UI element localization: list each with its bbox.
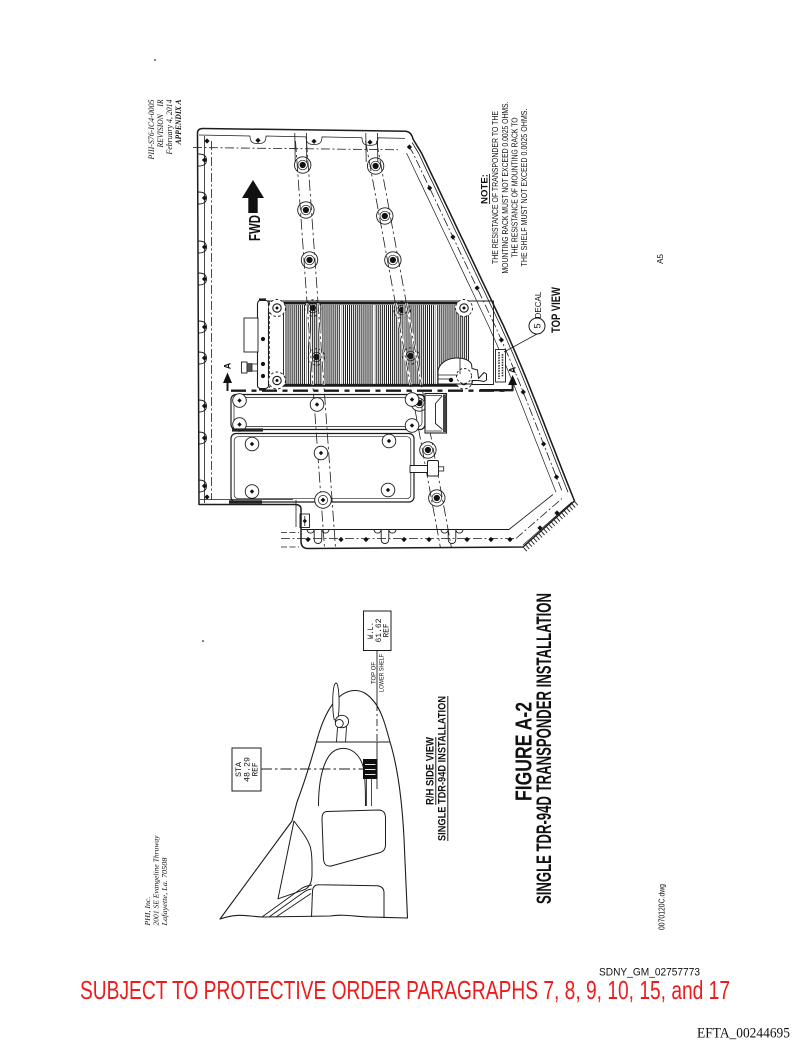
svg-text:Lafayette, La. 70508: Lafayette, La. 70508 [160,857,169,926]
svg-text:PIII-S76-IC4-0005: PIII-S76-IC4-0005 [147,100,156,161]
svg-text:SINGLE TDR-94D TRANSPONDER INS: SINGLE TDR-94D TRANSPONDER INSTALLATION [533,593,556,904]
svg-text:EFTA_00244695: EFTA_00244695 [697,1026,790,1042]
svg-text:TOP OF: TOP OF [371,662,378,684]
svg-text:0070120C.dwg: 0070120C.dwg [658,884,667,930]
svg-text:February 4, 2014: February 4, 2014 [165,100,174,156]
svg-text:5: 5 [533,323,543,328]
svg-text:A: A [508,366,518,373]
svg-text:R/H SIDE VIEW: R/H SIDE VIEW [425,736,437,805]
svg-text:REF: REF [252,762,261,776]
svg-text:THE RESISTANCE OF MOUNTING RAC: THE RESISTANCE OF MOUNTING RACK TO [511,118,520,258]
svg-text:LOWER SHELF: LOWER SHELF [379,654,386,692]
svg-text:TOP VIEW: TOP VIEW [549,286,563,333]
svg-text:A5: A5 [656,254,665,264]
svg-text:APPENDIX A: APPENDIX A [174,99,183,145]
svg-text:MOUNTING RACK MUST NOT EXCEED: MOUNTING RACK MUST NOT EXCEED 0.0025 OHM… [501,102,510,274]
svg-text:NOTE:: NOTE: [480,174,491,204]
svg-text:REF: REF [383,623,392,637]
svg-text:FWD: FWD [247,215,264,241]
svg-text:DECAL: DECAL [534,291,543,318]
svg-text:A: A [223,362,233,369]
svg-text:THE RESISTANCE OF TRANSPONDER: THE RESISTANCE OF TRANSPONDER TO THE [491,111,500,264]
svg-text:THE SHELF MUST NOT EXCEED 0.00: THE SHELF MUST NOT EXCEED 0.0025 OHMS. [520,109,529,267]
svg-text:SINGLE TDR-94D INSTALLATION: SINGLE TDR-94D INSTALLATION [437,696,449,841]
svg-text:SUBJECT TO PROTECTIVE ORDER PA: SUBJECT TO PROTECTIVE ORDER PARAGRAPHS 7… [80,975,730,1005]
svg-text:REVISION IR: REVISION IR [156,100,165,149]
